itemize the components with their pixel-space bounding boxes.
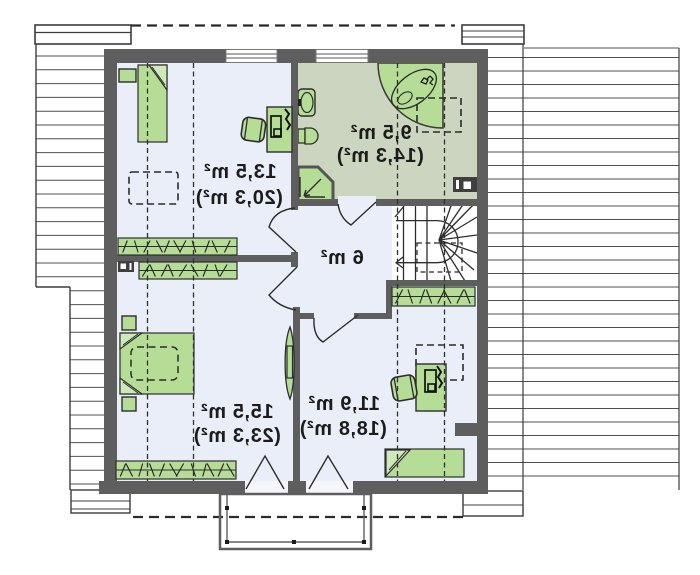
svg-text:(20,3 m²): (20,3 m²) [195,187,283,209]
svg-text:11,9 m²: 11,9 m² [308,393,380,415]
svg-text:(14,3 m²): (14,3 m²) [336,145,424,167]
svg-text:9,5 m²: 9,5 m² [350,122,411,144]
svg-text:15,5 m²: 15,5 m² [200,401,273,423]
svg-text:6 m²: 6 m² [320,247,364,269]
svg-text:(18,8 m²): (18,8 m²) [299,418,387,440]
svg-text:13,5 m²: 13,5 m² [203,161,276,183]
svg-text:(23,3 m²): (23,3 m²) [193,425,281,447]
